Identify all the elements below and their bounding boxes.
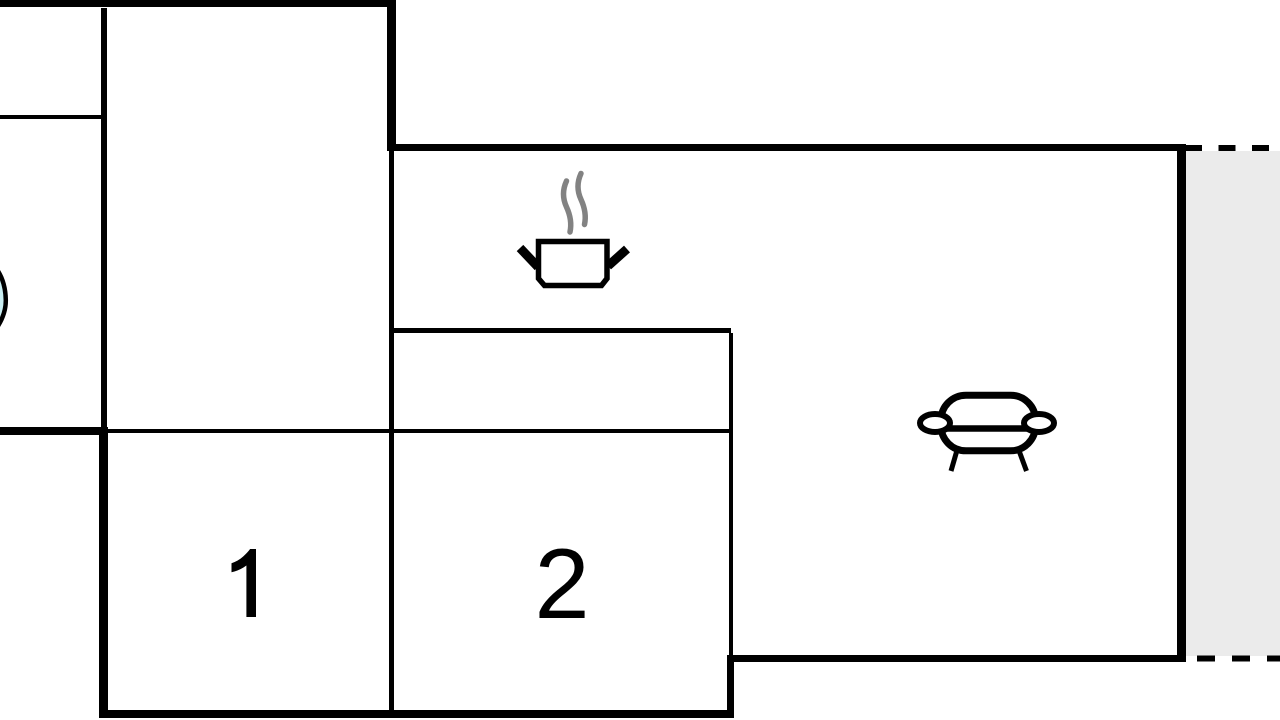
svg-text:2: 2 xyxy=(534,528,589,639)
